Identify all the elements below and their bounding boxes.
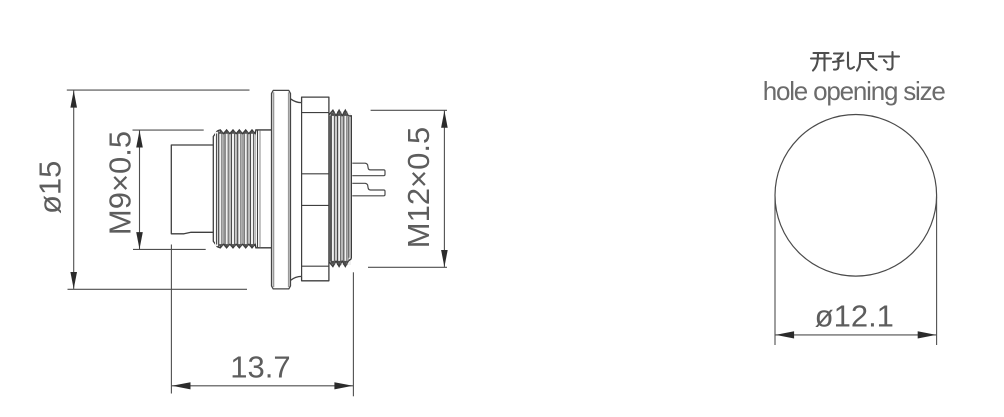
- svg-text:ø12.1: ø12.1: [815, 299, 894, 334]
- svg-text:hole opening size: hole opening size: [763, 76, 946, 106]
- svg-text:M12×0.5: M12×0.5: [401, 127, 436, 249]
- svg-text:M9×0.5: M9×0.5: [102, 131, 137, 235]
- svg-text:ø15: ø15: [33, 161, 68, 214]
- svg-text:13.7: 13.7: [230, 349, 290, 384]
